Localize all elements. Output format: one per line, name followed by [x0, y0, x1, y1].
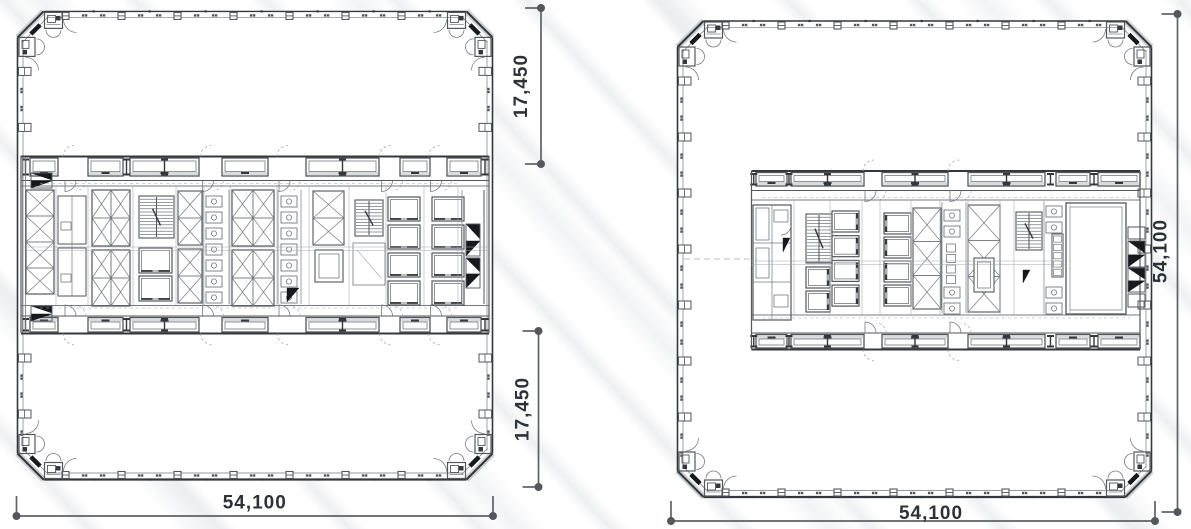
svg-text:17,450: 17,450 — [513, 377, 534, 441]
svg-text:54,100: 54,100 — [223, 493, 287, 514]
svg-text:17,450: 17,450 — [511, 54, 532, 118]
svg-text:54,100: 54,100 — [1151, 219, 1172, 283]
svg-text:54,100: 54,100 — [899, 503, 963, 524]
